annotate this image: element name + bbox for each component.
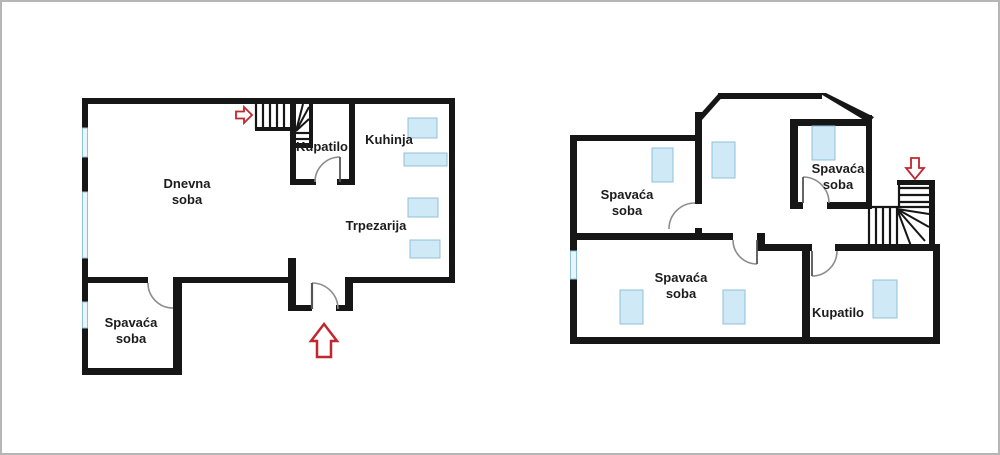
wall-segment [173,277,289,283]
wall-segment [790,119,872,126]
room-label-spavaca-soba-1: Spavaća soba [591,187,663,219]
window [652,148,673,182]
wall-segment [82,277,148,283]
wall-segment [929,180,935,250]
window [712,142,735,178]
door-arc [148,283,173,308]
wall-segment [695,112,702,204]
wall-segment [449,98,455,283]
wall-segment [790,202,803,209]
wall-segment [288,258,296,283]
window [571,251,577,279]
window [873,280,897,318]
door-arc [733,240,757,264]
wall-segment [570,135,702,141]
window [812,126,835,160]
room-label-kupatilo-upper: Kupatilo [812,305,864,321]
room-label-spavaca-soba-ground: Spavaća soba [95,315,167,347]
wall-segment [718,93,822,99]
wall-segment [290,179,316,185]
window [83,192,88,258]
wall-segment [570,233,733,240]
window [408,198,438,217]
wall-segment [827,202,872,209]
floor-plans-drawing [0,0,1000,455]
wall-segment [802,244,810,343]
room-label-spavaca-soba-2: Spavaća soba [802,161,874,193]
wall-segment [835,244,940,251]
room-label-spavaca-soba-3: Spavaća soba [645,270,717,302]
window [83,128,88,157]
room-label-kupatilo-ground: Kupatilo [296,139,348,155]
window [620,290,643,324]
stairs-up-arrow-icon [236,107,252,123]
wall-segment [345,277,455,283]
wall-segment [173,277,182,373]
wall-segment [933,244,940,344]
wall-segment [288,305,312,311]
window [83,302,88,328]
window [410,240,440,258]
door-arc [315,157,340,182]
door-arc [312,283,338,309]
door-arc [812,251,837,276]
window [723,290,745,324]
window [404,153,447,166]
room-label-trpezarija: Trpezarija [346,218,407,234]
room-label-dnevna-soba: Dnevna soba [151,176,223,208]
wall-segment [790,120,798,208]
wall-segment [82,98,455,104]
door-arc [669,203,695,229]
upper-floor-stairs [868,182,929,246]
wall-segment [82,368,182,375]
wall-segment [570,337,940,344]
wall-segment [897,180,935,185]
stairs-down-arrow-icon [906,158,924,179]
wall-segment [345,277,353,311]
wall-segment [819,93,874,123]
upper-floor-windows [571,126,898,324]
room-label-kuhinja: Kuhinja [365,132,413,148]
wall-segment [349,98,355,185]
floor-plan-screenshot: Dnevna soba Kupatilo Kuhinja Trpezarija … [0,0,1000,455]
entrance-arrow-icon [311,324,337,357]
